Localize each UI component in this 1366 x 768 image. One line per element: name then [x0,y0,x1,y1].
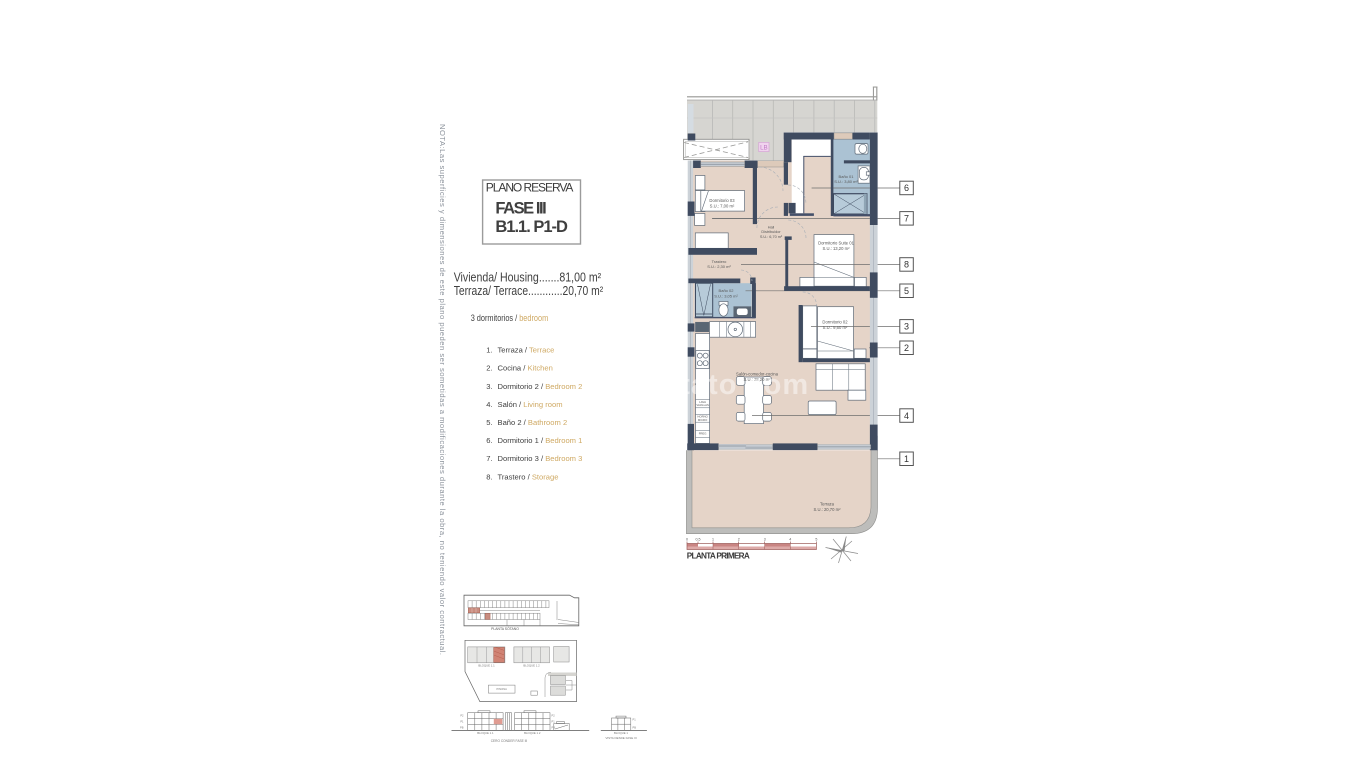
svg-text:VISTA DESDE FASE III: VISTA DESDE FASE III [605,736,636,740]
svg-text:4: 4 [904,411,909,421]
svg-text:7: 7 [904,214,909,224]
svg-text:PISCINA: PISCINA [497,687,508,691]
svg-text:P1: P1 [552,719,556,723]
svg-text:6.Dormitorio 1 / Bedroom 1: 6.Dormitorio 1 / Bedroom 1 [486,436,582,445]
svg-text:5: 5 [815,538,817,542]
svg-text:8.Trastero / Storage: 8.Trastero / Storage [486,472,558,481]
svg-text:PB: PB [633,725,637,729]
svg-text:BLOQUE 1.2: BLOQUE 1.2 [524,731,541,735]
svg-text:estato com: estato com [646,369,809,401]
svg-text:5.Baño 2 / Bathroom 2: 5.Baño 2 / Bathroom 2 [486,418,567,427]
svg-text:0: 0 [686,538,688,542]
svg-text:Dormitorio 02: Dormitorio 02 [822,320,848,325]
svg-text:B1.1. P1-D: B1.1. P1-D [495,218,568,236]
svg-text:BLOQUE 1.1: BLOQUE 1.1 [478,664,495,668]
svg-text:Hall: Hall [768,226,775,230]
svg-text:P1: P1 [460,719,464,723]
svg-text:S.U.: 3,05 m²: S.U.: 3,05 m² [714,293,738,298]
svg-text:BLOQUE 1.2: BLOQUE 1.2 [523,664,540,668]
svg-text:8: 8 [904,260,909,270]
svg-text:3: 3 [764,538,766,542]
svg-text:NOTA:Las superficies y dimensi: NOTA:Las superficies y dimensiones de es… [438,124,447,655]
svg-text:S.U.: 13,20 m²: S.U.: 13,20 m² [823,246,851,251]
svg-text:Terraza/ Terrace............20: Terraza/ Terrace............20,70 m² [454,283,604,298]
svg-text:LB: LB [760,145,768,152]
svg-text:S.U.: 9,60 m²: S.U.: 9,60 m² [823,325,848,330]
svg-text:4.Salón / Living room: 4.Salón / Living room [486,400,562,409]
svg-text:PLANTA PRIMERA: PLANTA PRIMERA [687,552,750,561]
svg-text:S.U.: 7,00 m²: S.U.: 7,00 m² [710,204,735,209]
svg-text:PLANTA SÓTANO: PLANTA SÓTANO [491,626,519,631]
svg-text:2: 2 [904,343,909,353]
svg-text:PLANO RESERVA: PLANO RESERVA [486,181,574,195]
svg-text:PB: PB [552,725,556,729]
svg-text:Dormitorio 03: Dormitorio 03 [709,198,735,203]
svg-text:Terraza: Terraza [820,502,835,507]
svg-text:S.U.: 6,70 m²: S.U.: 6,70 m² [760,235,783,239]
svg-text:BLOQUE 1: BLOQUE 1 [614,731,628,735]
svg-text:3: 3 [904,322,909,332]
svg-text:S.U.: 20,70 m²: S.U.: 20,70 m² [814,507,842,512]
svg-text:6: 6 [904,183,909,193]
svg-text:BLOQUE 1.1: BLOQUE 1.1 [477,731,494,735]
svg-text:S.U.: 3,80 m²: S.U.: 3,80 m² [834,179,858,184]
svg-text:CERO CONDER FASE III: CERO CONDER FASE III [491,739,528,743]
svg-text:S.U.: 2,30 m²: S.U.: 2,30 m² [707,264,731,269]
svg-text:3.Dormitorio 2 / Bedroom 2: 3.Dormitorio 2 / Bedroom 2 [486,382,582,391]
svg-text:P1: P1 [633,718,637,722]
svg-text:MICRO: MICRO [698,418,708,422]
svg-text:FREG: FREG [699,432,707,436]
svg-text:0,5: 0,5 [696,538,701,542]
svg-text:Dormitorio Suite 01: Dormitorio Suite 01 [818,241,855,246]
svg-text:5: 5 [904,286,909,296]
svg-text:2: 2 [738,538,740,542]
svg-text:4: 4 [789,538,791,542]
svg-text:P2: P2 [552,714,556,718]
svg-text:P2: P2 [460,714,464,718]
svg-text:7.Dormitorio 3 / Bedroom 3: 7.Dormitorio 3 / Bedroom 3 [486,454,582,463]
svg-text:1: 1 [904,454,909,464]
svg-text:FASE III: FASE III [495,200,546,218]
svg-text:VAJILLAS: VAJILLAS [696,403,709,407]
svg-text:PB: PB [460,725,464,729]
svg-text:3 dormitorios / bedroom: 3 dormitorios / bedroom [471,313,549,323]
svg-text:Distribuidor: Distribuidor [761,230,781,234]
svg-text:1: 1 [712,538,714,542]
